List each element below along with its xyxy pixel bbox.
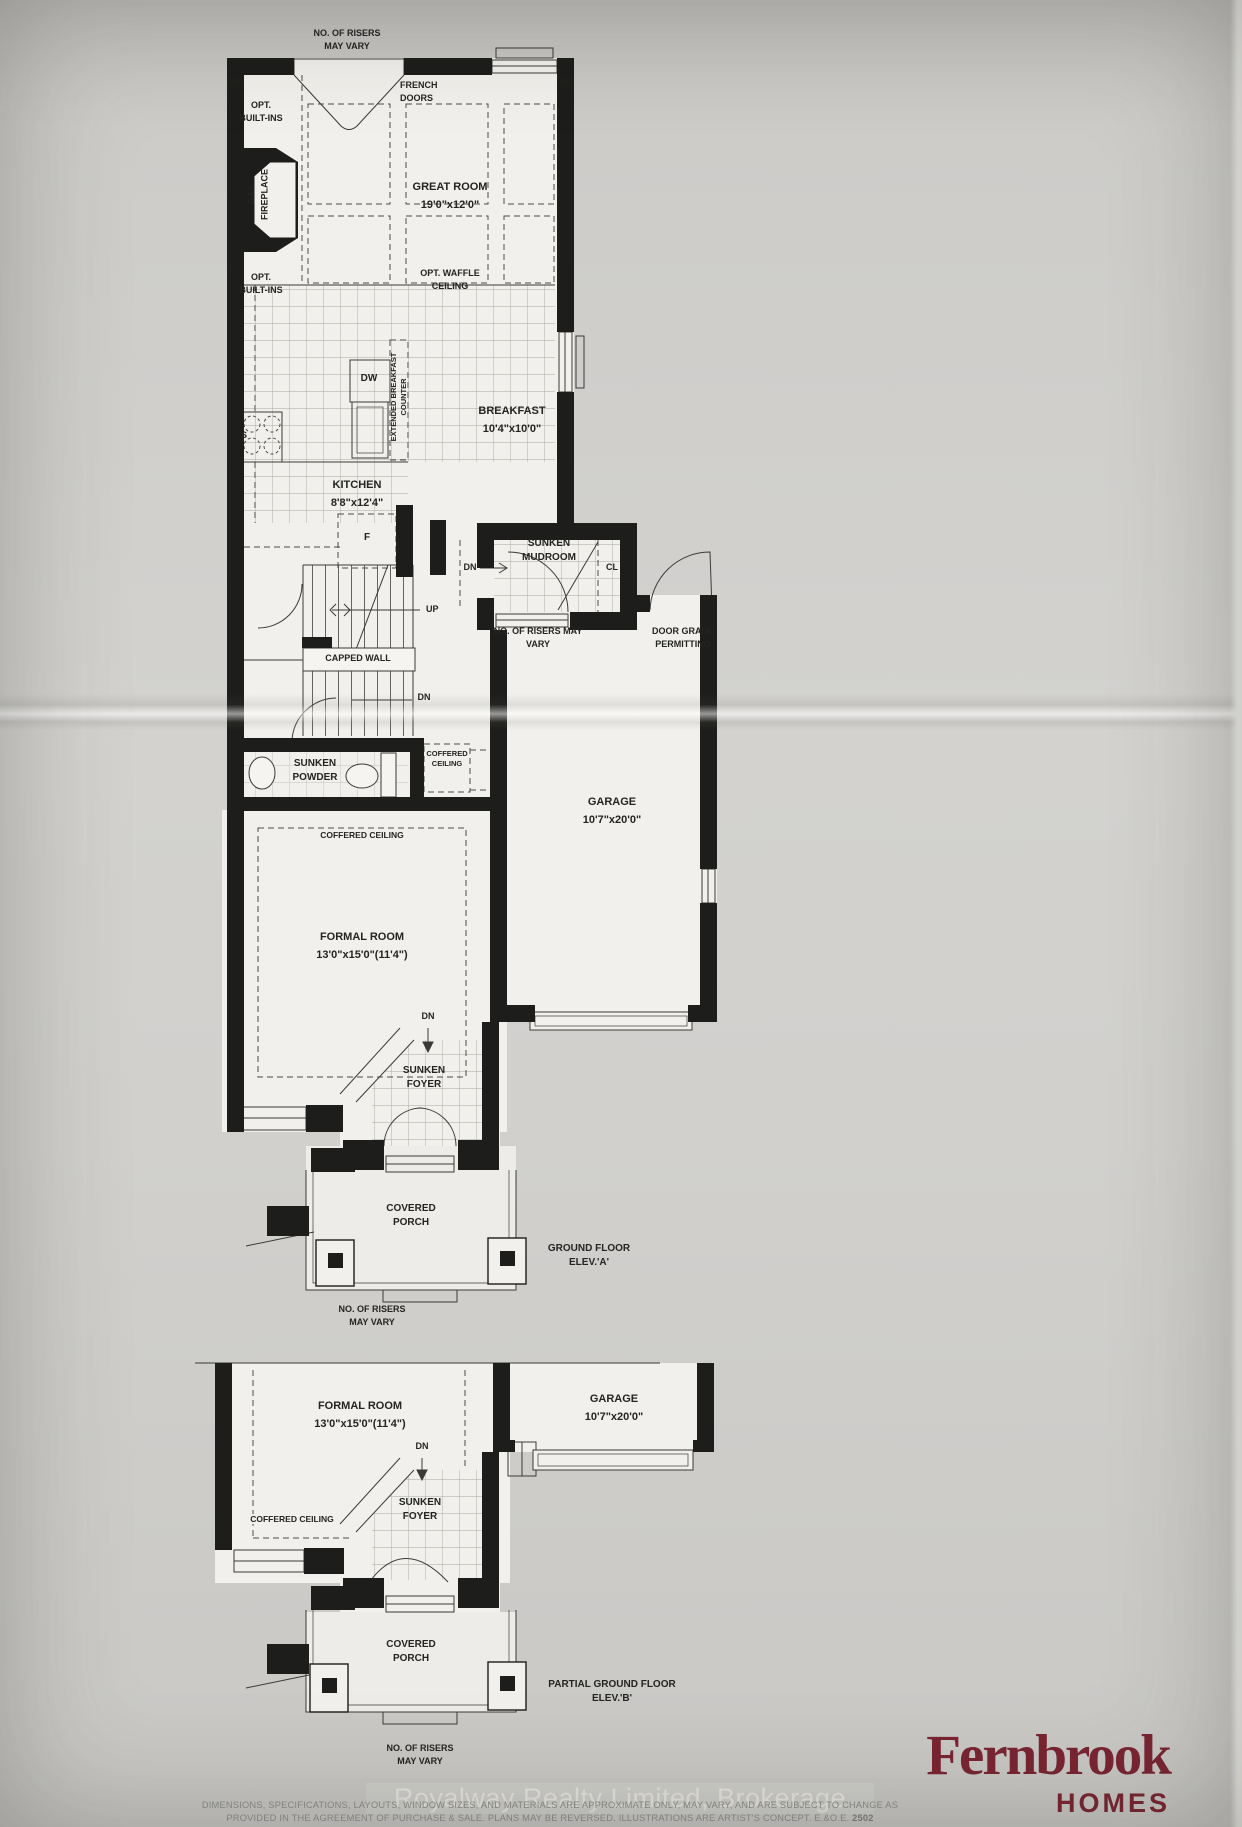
porch-b-label: COVERED PORCH [361,1638,461,1666]
stairs-up-label: UP [426,603,454,616]
mudroom-dn-label: DN [458,561,482,574]
note-gas-fireplace: GAS FIREPLACE [246,149,271,241]
formal-room-dims: 13'0"x15'0"(11'4") [282,947,442,964]
floor-plan-photo: NO. OF RISERS MAY VARY FRENCH DOORS OPT.… [0,0,1242,1827]
note-risers-porch-a: NO. OF RISERS MAY VARY [317,1303,427,1328]
porch-label: COVERED PORCH [361,1202,461,1230]
note-coffered-ceiling-small: COFFERED CEILING [419,749,475,769]
note-french-doors: FRENCH DOORS [400,79,460,104]
note-coffered-ceiling-b: COFFERED CEILING [232,1514,352,1525]
disclaimer-line-2-text: PROVIDED IN THE AGREEMENT OF PURCHASE & … [226,1813,849,1823]
plan-linework [0,0,1242,1827]
note-coffered-ceiling-formal: COFFERED CEILING [302,830,422,841]
plan-a-title: GROUND FLOOR ELEV.'A' [514,1242,664,1270]
formal-room-b-label: FORMAL ROOM [280,1398,440,1415]
disclaimer-line-1: DIMENSIONS, SPECIFICATIONS, LAYOUTS, WIN… [180,1799,920,1812]
garage-dims: 10'7"x20'0" [557,812,667,829]
note-opt-waffle-ceiling: OPT. WAFFLE CEILING [395,267,505,292]
foyer-b-dn-label: DN [410,1440,434,1453]
closet-cl-label: CL [600,561,624,574]
plan-number: 2502 [852,1813,873,1823]
builder-logo: Fernbrook [880,1726,1170,1786]
paper-edge-highlight [1230,0,1242,1827]
breakfast-label: BREAKFAST [452,403,572,420]
disclaimer-line-2: PROVIDED IN THE AGREEMENT OF PURCHASE & … [180,1812,920,1825]
mudroom-label: SUNKEN MUDROOM [504,537,594,565]
appliance-s-label: S [236,429,252,442]
note-risers-porch-b: NO. OF RISERS MAY VARY [365,1742,475,1767]
foyer-label: SUNKEN FOYER [384,1064,464,1092]
appliance-dw-label: DW [349,372,389,386]
foyer-dn-label: DN [416,1010,440,1023]
appliance-f-label: F [357,531,377,545]
note-coffered-ceiling-formal-text: COFFERED CEILING [317,830,407,840]
note-coffered-ceiling-b-text: COFFERED CEILING [247,1514,337,1524]
garage-b-dims: 10'7"x20'0" [559,1409,669,1426]
garage-label: GARAGE [557,794,667,811]
great-room-dims: 19'0"x12'0" [380,197,520,214]
great-room-label: GREAT ROOM [380,179,520,196]
foyer-b-label: SUNKEN FOYER [380,1496,460,1524]
formal-room-label: FORMAL ROOM [282,929,442,946]
builder-logo-word: HOMES [884,1788,1170,1819]
capped-wall-label: CAPPED WALL [308,652,408,665]
breakfast-dims: 10'4"x10'0" [452,421,572,438]
note-opt-built-ins-lower: OPT. BUILT-INS [229,271,293,296]
note-risers-garage: NO. OF RISERS MAY VARY [483,625,593,650]
note-door-grade: DOOR GRADE PERMITTING [643,625,723,650]
note-risers-top: NO. OF RISERS MAY VARY [282,27,412,52]
kitchen-dims: 8'8"x12'4" [302,495,412,512]
formal-room-b-dims: 13'0"x15'0"(11'4") [280,1416,440,1433]
plan-b-title: PARTIAL GROUND FLOOR ELEV.'B' [517,1678,707,1706]
garage-b-label: GARAGE [559,1391,669,1408]
note-extended-breakfast-counter: EXTENDED BREAKFAST COUNTER [389,337,409,457]
note-opt-built-ins-upper: OPT. BUILT-INS [229,99,293,124]
kitchen-label: KITCHEN [302,477,412,494]
powder-label: SUNKEN POWDER [275,757,355,785]
paper-fold-crease [0,694,1242,730]
